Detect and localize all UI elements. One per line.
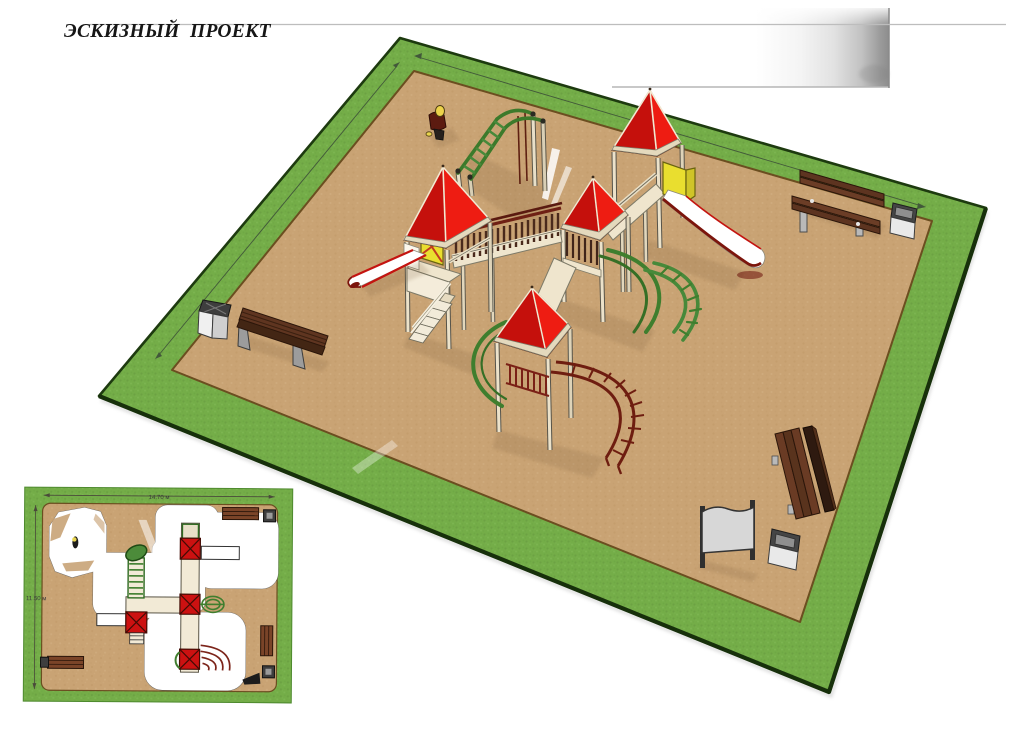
svg-text:11.50 м: 11.50 м <box>26 596 46 602</box>
svg-text:14.70 м: 14.70 м <box>149 495 170 501</box>
